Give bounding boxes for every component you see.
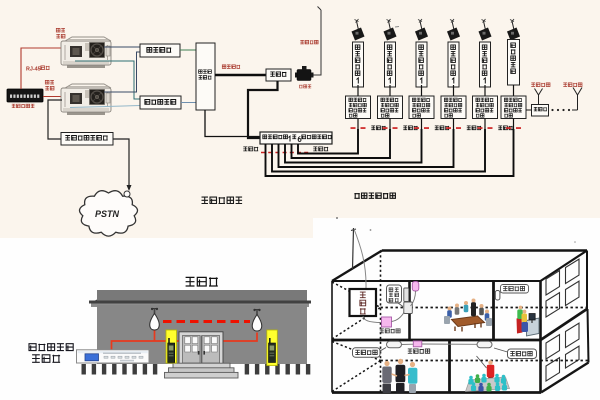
svg-text:RJ-45: RJ-45: [26, 67, 41, 73]
svg-text:PSTN: PSTN: [95, 209, 120, 219]
